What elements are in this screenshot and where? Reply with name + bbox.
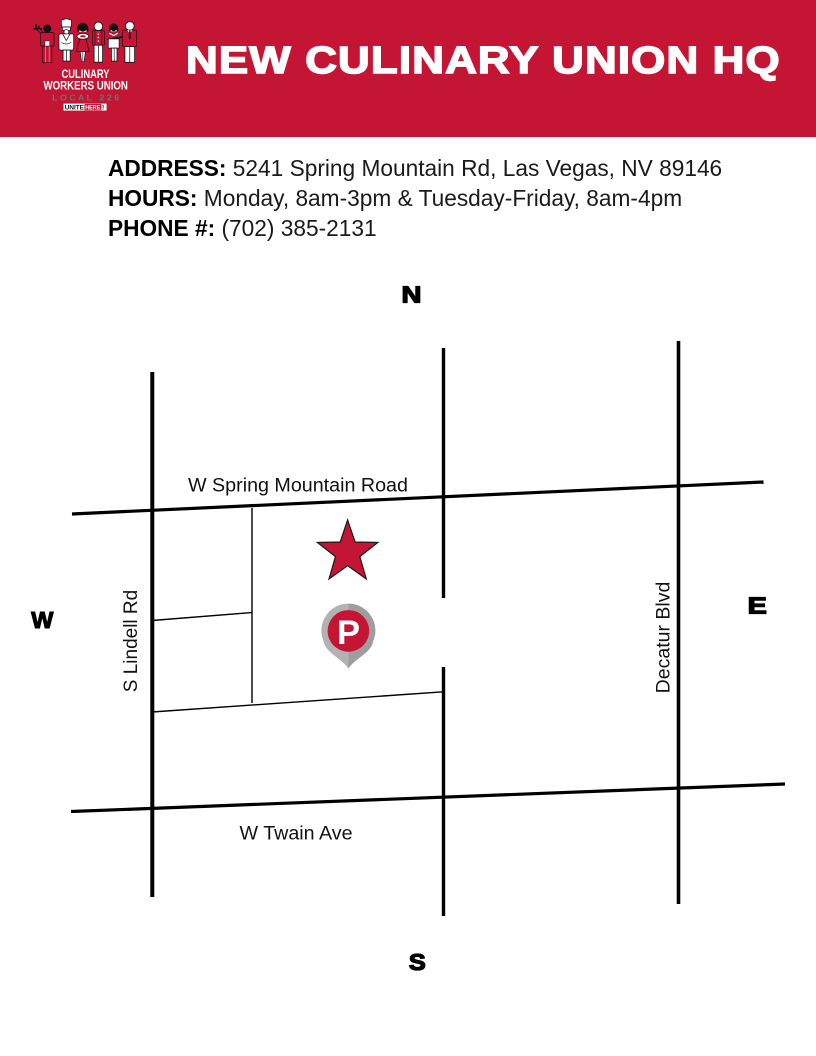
svg-text:L O C A L 2 2 6: L O C A L 2 2 6 <box>52 94 120 103</box>
svg-text:N: N <box>402 283 422 308</box>
svg-text:P: P <box>337 614 360 652</box>
svg-text:!: ! <box>102 105 104 112</box>
svg-text:S: S <box>409 950 426 976</box>
svg-text:W Twain Ave: W Twain Ave <box>240 823 353 845</box>
svg-text:WORKERS UNION: WORKERS UNION <box>43 81 128 93</box>
svg-text:CULINARY: CULINARY <box>62 69 110 81</box>
svg-text:W: W <box>31 607 53 633</box>
svg-text:S Lindell Rd: S Lindell Rd <box>121 590 142 692</box>
svg-text:HERE: HERE <box>85 104 100 111</box>
svg-text:E: E <box>748 592 767 619</box>
svg-text:UNITE: UNITE <box>65 105 85 112</box>
svg-text:W Spring Mountain Road: W Spring Mountain Road <box>188 475 408 497</box>
svg-text:Decatur Blvd: Decatur Blvd <box>652 582 674 694</box>
